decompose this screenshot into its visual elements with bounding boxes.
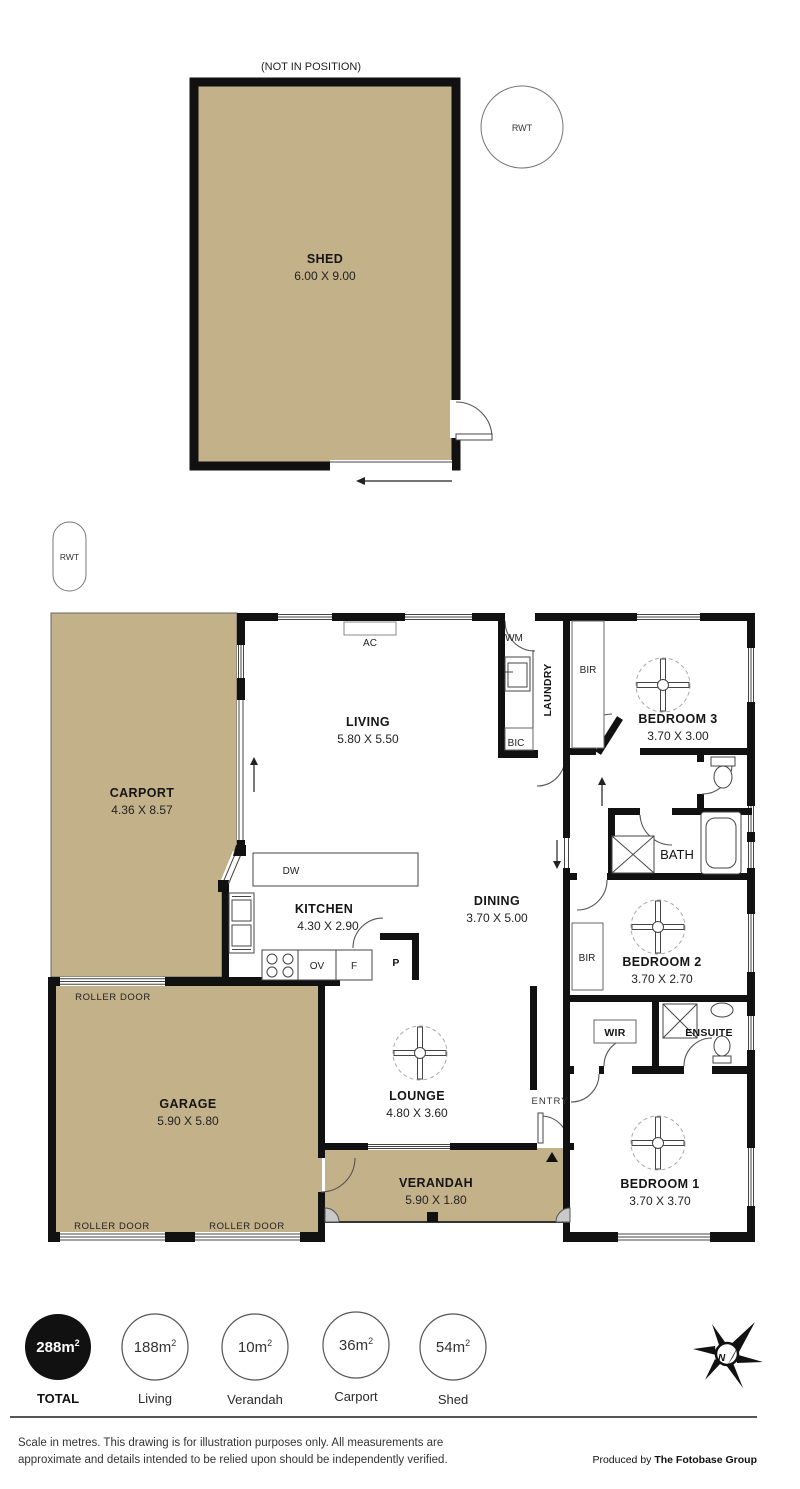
disclaimer-line1: Scale in metres. This drawing is for ill… [18, 1437, 443, 1449]
legend-carport: 36m2 Carport [323, 1312, 389, 1404]
verandah-name: VERANDAH [399, 1176, 473, 1190]
produced-by: Produced by The Fotobase Group [592, 1454, 757, 1466]
bathtub-icon [701, 812, 741, 874]
window-bedroom3 [637, 613, 700, 621]
svg-text:36m2: 36m2 [339, 1336, 373, 1354]
svg-text:Shed: Shed [438, 1392, 468, 1407]
shed: SHED 6.00 X 9.00 [194, 82, 492, 485]
kitchen-fixtures: DW OV F P [229, 853, 418, 980]
lounge-dims: 4.80 X 3.60 [386, 1106, 448, 1120]
bedroom2-dims: 3.70 X 2.70 [631, 972, 693, 986]
living-dims: 5.80 X 5.50 [337, 732, 399, 746]
slide-arrow-hall-up-icon [598, 777, 606, 806]
wir-name: WIR [604, 1027, 625, 1039]
bedroom3-name: BEDROOM 3 [638, 712, 717, 726]
bedroom2-name: BEDROOM 2 [622, 955, 701, 969]
legend-living: 188m2 Living [122, 1314, 188, 1406]
slide-arrow-carport-icon [250, 757, 258, 792]
basin-icon [711, 1003, 733, 1017]
rainwater-tank-pill: RWT [53, 522, 86, 591]
svg-text:Living: Living [138, 1391, 172, 1406]
legend-total: 288m2 TOTAL [25, 1314, 91, 1406]
window-bath-2 [747, 842, 755, 868]
total-label: TOTAL [37, 1391, 79, 1406]
floorplan-page: (NOT IN POSITION) SHED 6.00 X 9.00 RWT R… [0, 0, 800, 1489]
shed-dims: 6.00 X 9.00 [294, 269, 356, 283]
bedroom3-dims: 3.70 X 3.00 [647, 729, 709, 743]
laundry-name: LAUNDRY [542, 663, 554, 716]
window-living-2 [405, 613, 472, 621]
footer: Scale in metres. This drawing is for ill… [10, 1417, 757, 1466]
bed1-door-arc [571, 1074, 599, 1102]
shower-icon [612, 836, 654, 873]
ov-label: OV [310, 961, 325, 972]
window-living-1 [278, 613, 332, 621]
verandah-dims: 5.90 X 1.80 [405, 1193, 467, 1207]
not-in-position-label: (NOT IN POSITION) [261, 61, 361, 73]
window-bed2-right [747, 914, 755, 972]
ac-label: AC [363, 638, 377, 649]
bath-name: BATH [660, 847, 694, 862]
rwt-label: RWT [512, 123, 533, 133]
verandah-post-center [427, 1212, 438, 1222]
living-name: LIVING [346, 715, 390, 729]
dw-label: DW [283, 866, 300, 877]
svg-text:54m2: 54m2 [436, 1338, 470, 1356]
disclaimer-line2: approximate and details intended to be r… [18, 1454, 448, 1466]
ceiling-fan-icon [636, 658, 690, 712]
floorplan-drawing: (NOT IN POSITION) SHED 6.00 X 9.00 RWT R… [0, 0, 800, 1489]
dining-dims: 3.70 X 5.00 [466, 911, 528, 925]
shed-name: SHED [307, 252, 343, 266]
wm-label: WM [505, 633, 523, 644]
window-bed1-right [747, 1148, 755, 1206]
window-lounge [368, 1143, 450, 1150]
total-value: 288m2 [36, 1338, 79, 1356]
ceiling-fan-icon [393, 1026, 447, 1080]
window-bed3-right [747, 648, 755, 702]
shed-door-opening [450, 400, 462, 438]
laundry-hall-door-arc [537, 758, 565, 786]
cooktop-icon [262, 950, 298, 980]
bed2-bir: BIR [572, 923, 603, 990]
legend-shed: 54m2 Shed [420, 1314, 486, 1407]
lounge-name: LOUNGE [389, 1089, 445, 1103]
ensuite-name: ENSUITE [685, 1027, 733, 1039]
shed-door-leaf [456, 434, 492, 440]
svg-text:188m2: 188m2 [134, 1338, 177, 1356]
kitchen-name: KITCHEN [295, 902, 353, 916]
bath-fixtures: BATH [612, 812, 741, 874]
fridge-label: F [351, 961, 357, 972]
laundry-trough-icon [505, 657, 530, 691]
garage-name: GARAGE [159, 1097, 216, 1111]
shed-slide-arrow-icon [356, 477, 452, 485]
roller-door-bottom-left [60, 1232, 165, 1242]
kitchen-sink-icon [229, 893, 254, 953]
bedroom1-dims: 3.70 X 3.70 [629, 1194, 691, 1208]
slide-arrow-hall-down-icon [553, 840, 561, 869]
roller-door-label-bl: ROLLER DOOR [74, 1221, 150, 1232]
ac-unit: AC [344, 622, 396, 649]
window-bed1-bottom [618, 1232, 710, 1242]
toilet-icon [711, 757, 735, 788]
toilet-icon [713, 1036, 731, 1063]
svg-text:10m2: 10m2 [238, 1338, 272, 1356]
svg-text:Verandah: Verandah [227, 1392, 283, 1407]
wir-box: WIR [594, 1020, 636, 1043]
rwt-label: RWT [60, 552, 79, 562]
window-carport-wall [237, 645, 245, 678]
svg-text:Carport: Carport [334, 1389, 378, 1404]
bic-label: BIC [508, 738, 525, 749]
fotobase-compass-logo-icon: N [693, 1322, 763, 1388]
roller-door-bottom-right [195, 1232, 300, 1242]
dining-name: DINING [474, 894, 520, 908]
legend-verandah: 10m2 Verandah [222, 1314, 288, 1407]
carport-dims: 4.36 X 8.57 [111, 803, 173, 817]
pantry-label: P [392, 957, 399, 969]
garage-dims: 5.90 X 5.80 [157, 1114, 219, 1128]
rainwater-tank-round: RWT [481, 86, 563, 168]
entry-name: ENTRY [531, 1096, 568, 1107]
roller-door-label-top: ROLLER DOOR [75, 992, 151, 1003]
bed2-door-arc [577, 880, 607, 910]
bir-label: BIR [580, 665, 597, 676]
kitchen-dims: 4.30 X 2.90 [297, 919, 359, 933]
sliding-door-hall [563, 838, 570, 868]
sliding-door-carport [237, 700, 245, 840]
area-legend: 288m2 TOTAL 188m2 Living 10m2 Verandah 3… [25, 1312, 486, 1407]
roller-door-top [60, 977, 165, 986]
ensuite-door-arc [684, 1038, 712, 1066]
roller-door-label-br: ROLLER DOOR [209, 1221, 285, 1232]
ceiling-fan-icon [631, 1116, 685, 1170]
bedroom1-name: BEDROOM 1 [620, 1177, 699, 1191]
carport-name: CARPORT [110, 786, 175, 800]
ceiling-fan-icon [631, 900, 685, 954]
bir-label: BIR [579, 953, 596, 964]
logo-n: N [718, 1353, 726, 1364]
window-ensuite-right [747, 1016, 755, 1050]
bed3-bir: BIR [572, 621, 604, 748]
kitchen-bench [253, 853, 418, 886]
